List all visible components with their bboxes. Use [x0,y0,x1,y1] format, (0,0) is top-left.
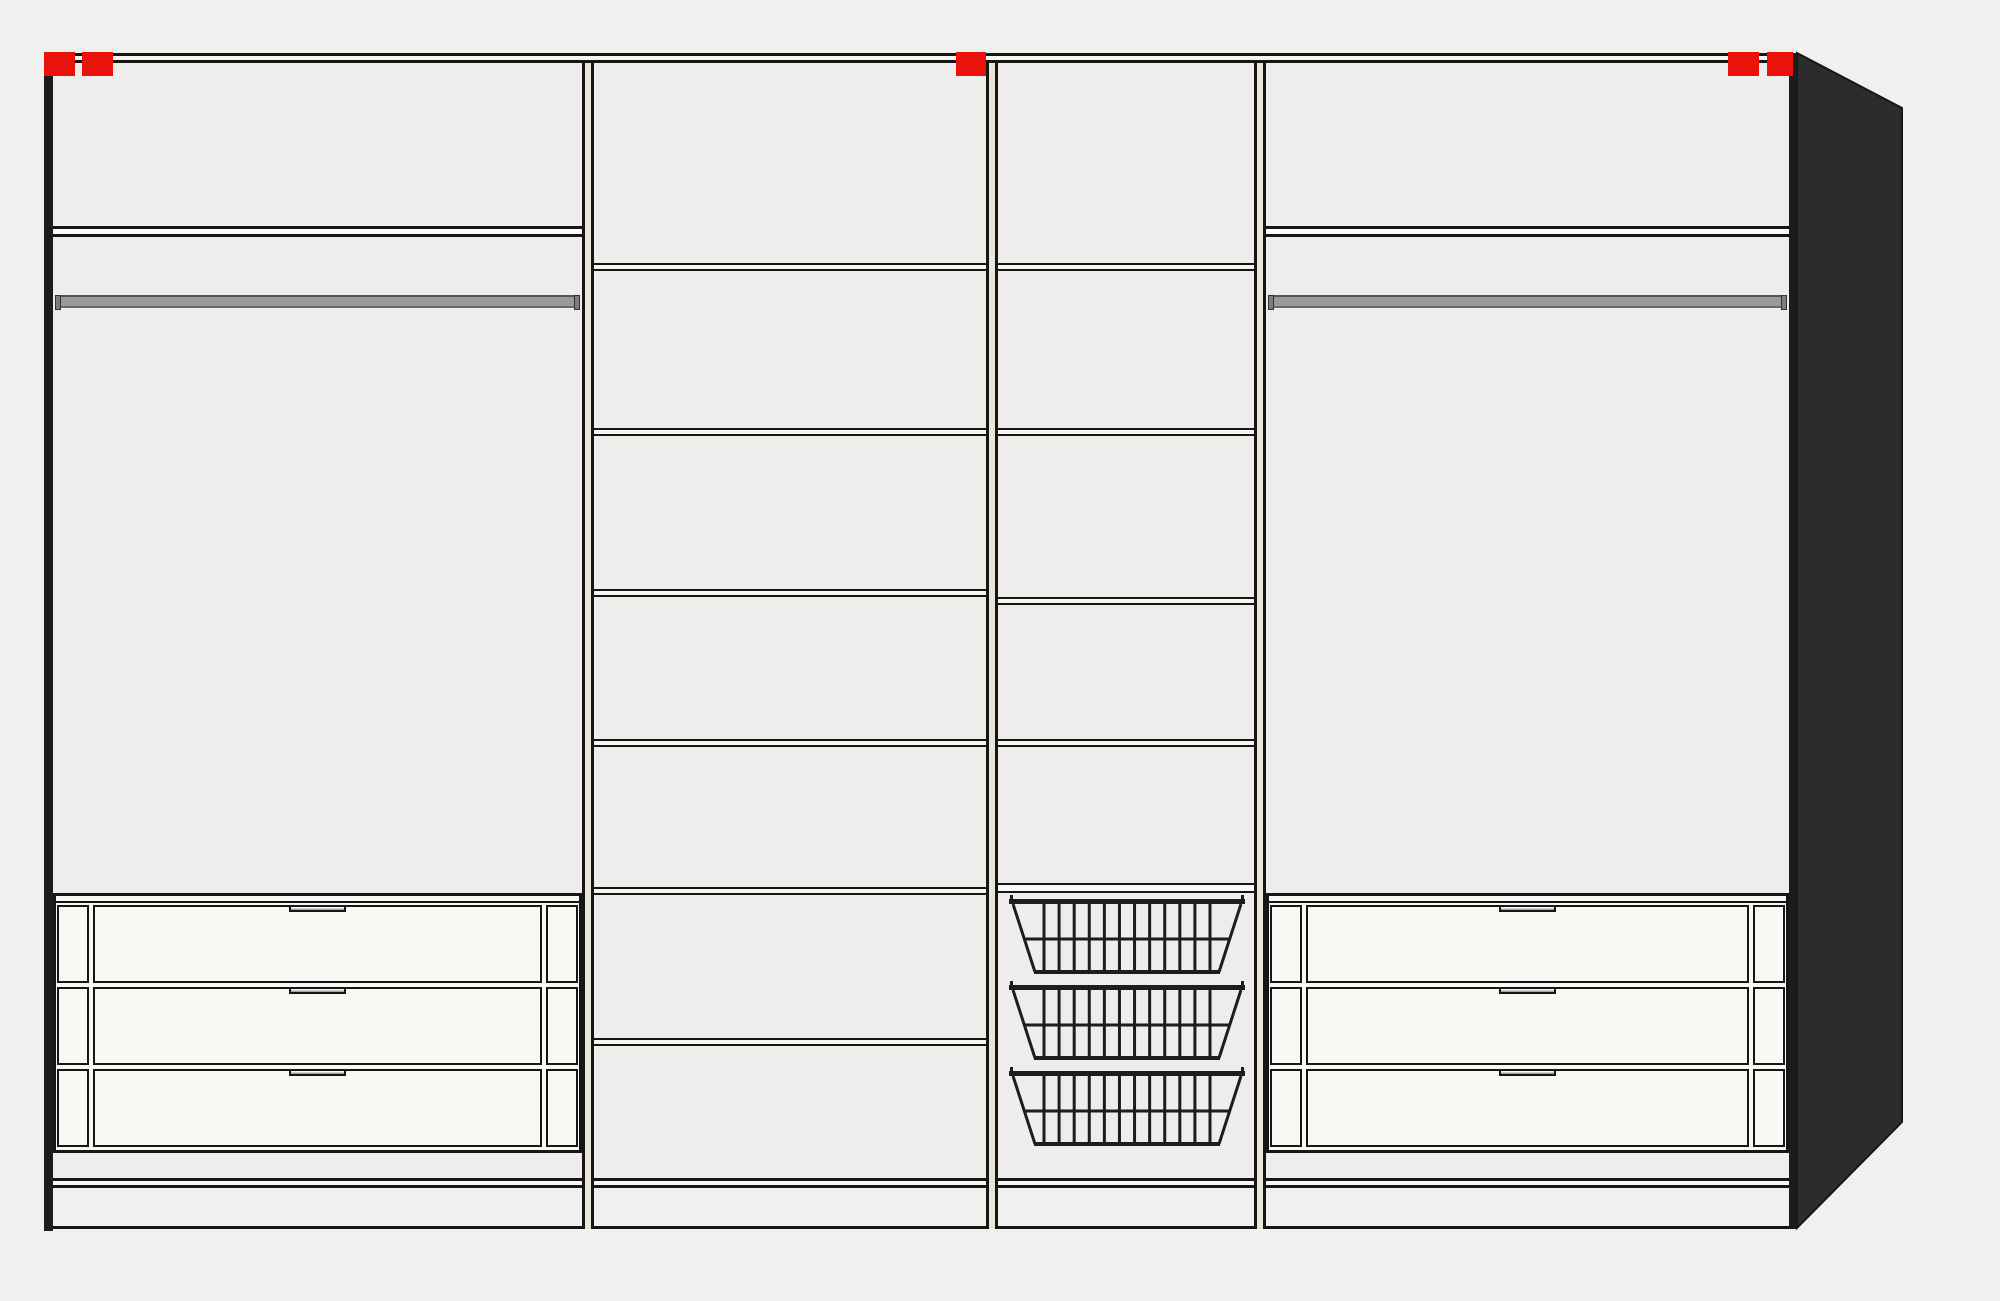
shelf [998,263,1254,271]
drawer-side-cell [546,987,578,1065]
drawer-side-cell [1753,905,1785,983]
clothes-rail [55,295,580,308]
drawer-unit [53,893,582,1153]
drawer-handle [289,905,346,912]
shelf [594,739,986,747]
basket-shelf [998,883,1254,893]
drawer [1306,1069,1749,1147]
drawer-handle [289,1069,346,1076]
drawer-side-cell [1270,987,1302,1065]
shelf [594,428,986,436]
wire-basket [1008,895,1246,979]
red-marker [1767,52,1793,76]
wardrobe-diagram [0,0,2000,1301]
drawer-handle [1499,905,1556,912]
drawer-side-cell [57,987,89,1065]
right-wall [1789,53,1797,1229]
shelf [998,428,1254,436]
drawer-side-cell [1270,905,1302,983]
shelf [998,597,1254,605]
clothes-rail-end-cap [1268,295,1274,310]
drawer-unit [1266,893,1789,1153]
red-marker [82,52,113,76]
wire-basket [1008,981,1246,1065]
clothes-rail-end-cap [1781,295,1787,310]
shelf [998,739,1254,747]
drawer [93,1069,542,1147]
drawer-handle [1499,1069,1556,1076]
divider-panel [986,63,998,1229]
drawer-side-cell [1753,987,1785,1065]
drawer [93,987,542,1065]
floor-panel [1266,1178,1789,1188]
clothes-rail [1268,295,1787,308]
left-wall [44,53,53,1231]
top-shelf [53,226,582,237]
divider-panel [1254,63,1266,1229]
divider-panel [582,63,594,1229]
red-marker [956,52,986,76]
floor-panel [998,1178,1254,1188]
red-marker [44,52,75,76]
floor-panel [53,1178,582,1188]
drawer-handle [1499,987,1556,994]
drawer [1306,905,1749,983]
drawer-side-cell [1753,1069,1785,1147]
top-panel [44,53,1797,63]
shelf [594,263,986,271]
wire-basket [1008,1067,1246,1151]
shelf [594,1038,986,1046]
shelf [594,887,986,895]
floor-panel [594,1178,986,1188]
drawer-side-cell [1270,1069,1302,1147]
side-panel [1795,50,1907,1232]
red-marker [1728,52,1759,76]
drawer-unit-top-rail [1269,896,1786,903]
wardrobe [0,0,2000,1301]
drawer [1306,987,1749,1065]
drawer-unit-top-rail [56,896,579,903]
drawer-side-cell [57,1069,89,1147]
shelf [594,589,986,597]
plinth [53,1188,1789,1229]
drawer-side-cell [546,905,578,983]
drawer-handle [289,987,346,994]
drawer-side-cell [57,905,89,983]
top-shelf [1266,226,1789,237]
clothes-rail-end-cap [55,295,61,310]
drawer-side-cell [546,1069,578,1147]
clothes-rail-end-cap [574,295,580,310]
drawer [93,905,542,983]
